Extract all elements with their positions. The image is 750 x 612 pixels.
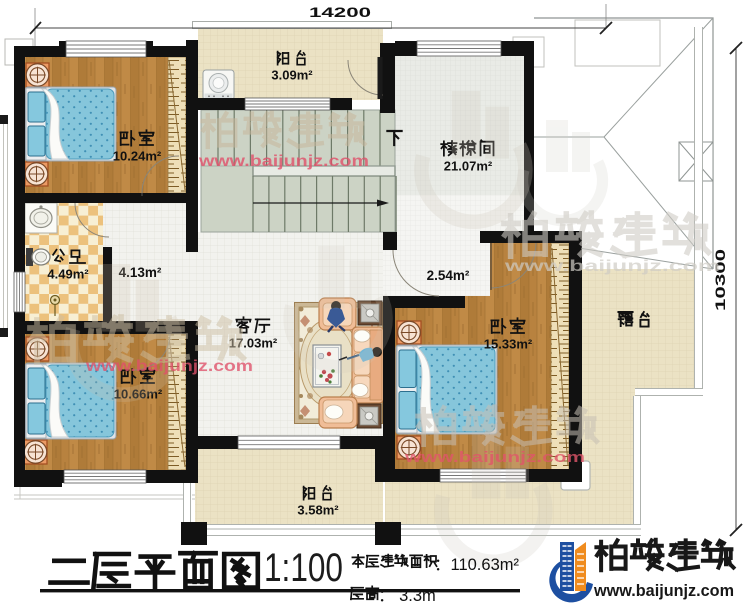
svg-text:3.09m²: 3.09m² (271, 68, 313, 83)
svg-text:： 3.3m: ： 3.3m (378, 587, 436, 605)
svg-text:www.baijunjz.com: www.baijunjz.com (85, 358, 253, 375)
svg-text:14200: 14200 (309, 4, 371, 20)
svg-text:21.07m²: 21.07m² (444, 159, 493, 174)
svg-text:：110.63m²: ：110.63m² (434, 556, 519, 574)
svg-text:www.baijunjz.com: www.baijunjz.com (198, 153, 369, 170)
svg-text:www.baijunjz.com: www.baijunjz.com (404, 449, 585, 466)
svg-text:www.baijunjz.com: www.baijunjz.com (593, 581, 734, 600)
svg-text:3.58m²: 3.58m² (297, 503, 339, 518)
svg-text:www.baijunjz.com: www.baijunjz.com (503, 258, 720, 275)
svg-text:10.24m²: 10.24m² (113, 149, 162, 164)
svg-text:2.54m²: 2.54m² (427, 268, 470, 283)
svg-text:1:100: 1:100 (264, 546, 343, 590)
svg-text:15.33m²: 15.33m² (484, 337, 533, 352)
svg-text:4.49m²: 4.49m² (47, 267, 89, 282)
